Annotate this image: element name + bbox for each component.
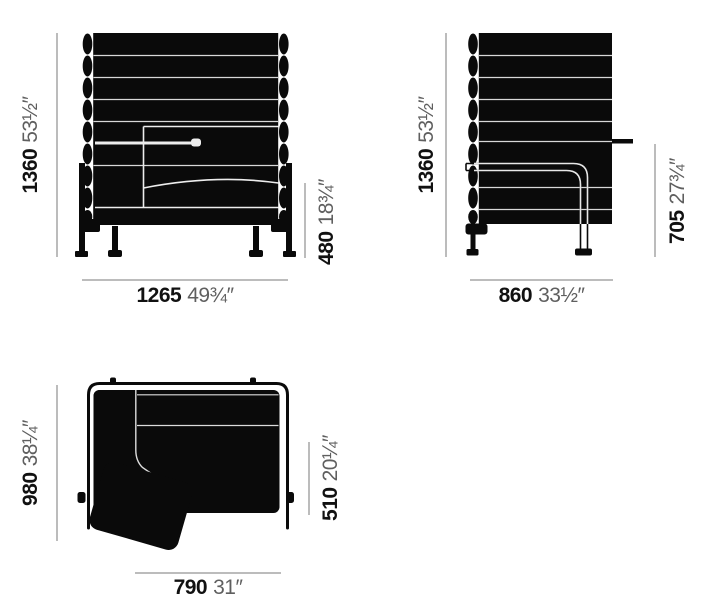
side-depth-label: 860 33½″	[470, 283, 613, 309]
front-width-label: 1265 49¾″	[82, 283, 288, 309]
side-height-mm: 1360	[414, 149, 440, 194]
top-seat-depth-label: 510 20¼″	[318, 403, 344, 553]
front-seat-height-in: 18¾″	[314, 179, 340, 225]
side-depth-in: 33½″	[538, 283, 584, 309]
top-seat-depth-mm: 510	[318, 487, 344, 521]
front-height-in: 53½″	[18, 96, 44, 142]
front-shell	[93, 33, 278, 225]
top-view-drawing	[78, 378, 295, 553]
top-front-width-label: 790 31″	[135, 575, 281, 601]
front-height-mm: 1360	[18, 149, 44, 194]
top-seat-depth-in: 20¼″	[318, 435, 344, 481]
front-view-drawing	[75, 33, 296, 257]
top-front-width-mm: 790	[174, 575, 208, 601]
top-depth-mm: 980	[18, 472, 44, 506]
front-seat-height-label: 480 18¾″	[314, 147, 340, 297]
side-table-height-label: 705 27¾″	[665, 126, 691, 276]
top-front-width-in: 31″	[213, 575, 242, 601]
side-height-label: 1360 53½″	[414, 70, 440, 220]
front-table-edge-cap	[191, 139, 201, 147]
side-table-height-in: 27¾″	[665, 158, 691, 204]
side-height-in: 53½″	[414, 96, 440, 142]
side-depth-mm: 860	[499, 283, 533, 309]
side-legs	[466, 224, 593, 256]
side-table-edge	[612, 139, 633, 144]
side-table-height-mm: 705	[665, 210, 691, 244]
front-width-mm: 1265	[136, 283, 181, 309]
front-height-label: 1360 53½″	[18, 70, 44, 220]
top-depth-label: 980 38¼″	[18, 388, 44, 538]
furniture-dimension-diagram: 1360 53½″ 1265 49¾″ 480 18¾″ 1360 53½″ 8…	[0, 0, 717, 610]
side-shell	[479, 33, 612, 224]
front-seat-height-mm: 480	[314, 231, 340, 265]
side-left-scallops	[468, 34, 478, 225]
front-width-in: 49¾″	[187, 283, 233, 309]
top-depth-in: 38¼″	[18, 420, 44, 466]
side-view-drawing	[466, 33, 634, 256]
